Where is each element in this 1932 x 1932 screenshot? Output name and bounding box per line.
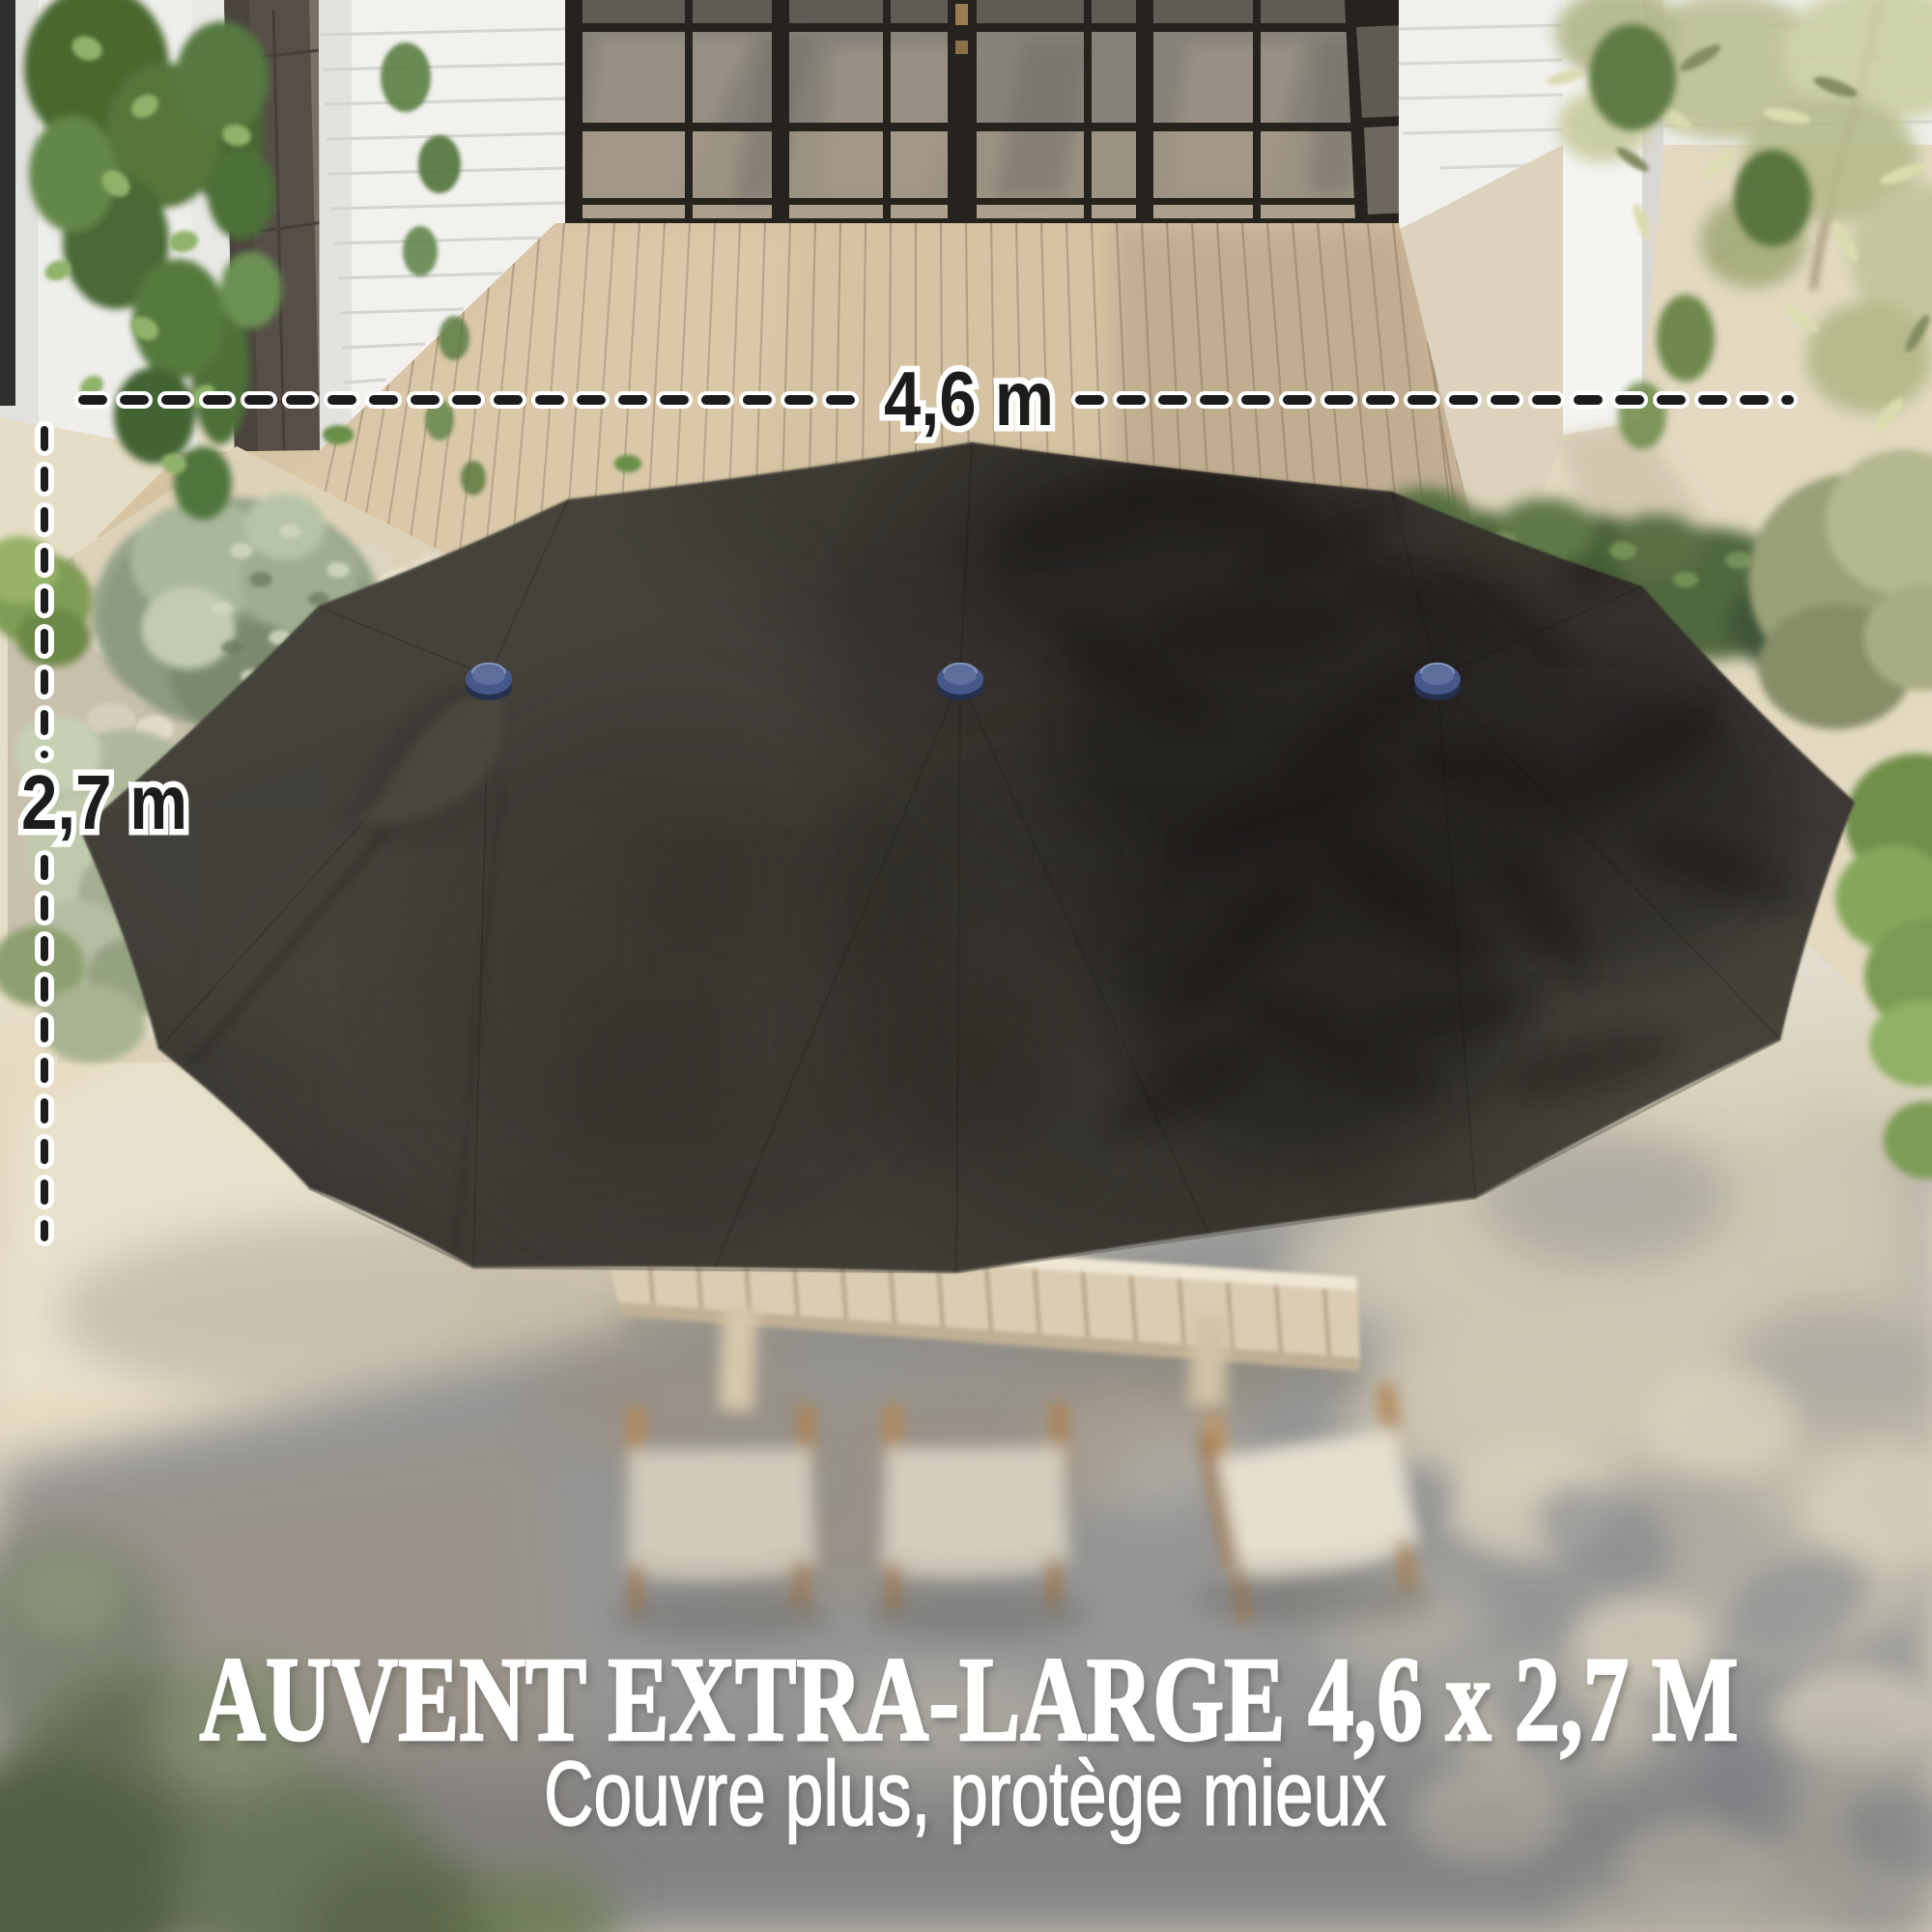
svg-text:Couvre plus, protège mieux: Couvre plus, protège mieux bbox=[544, 1743, 1386, 1845]
svg-text:4,6 m: 4,6 m bbox=[884, 355, 1054, 441]
svg-text:2,7 m: 2,7 m bbox=[21, 759, 187, 845]
